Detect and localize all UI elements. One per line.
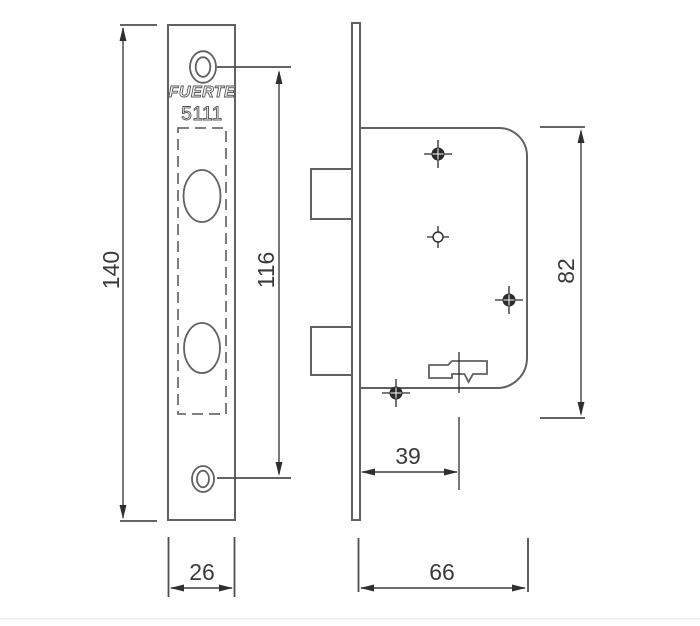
dimension-body-height: 82	[540, 127, 585, 418]
lock-body	[360, 128, 527, 388]
drawing-canvas: FUERTE 5111 140 116 26	[0, 0, 700, 626]
hole-spacing-value: 116	[253, 252, 279, 289]
arrow-down-icon	[276, 462, 283, 476]
front-view: FUERTE 5111	[168, 25, 236, 520]
arrow-up-icon	[578, 129, 585, 143]
latch-bolt-upper	[311, 169, 352, 219]
arrow-up-icon	[276, 70, 283, 84]
dimension-backset: 39	[361, 417, 459, 490]
lock-technical-drawing: FUERTE 5111 140 116 26	[0, 0, 700, 626]
brand-engraving: FUERTE	[169, 84, 237, 101]
arrow-right-icon	[219, 585, 233, 592]
arrow-down-icon	[120, 505, 127, 519]
faceplate-edge	[352, 23, 360, 520]
body-height-value: 82	[553, 258, 579, 284]
backset-value: 39	[395, 443, 421, 469]
front-height-value: 140	[98, 251, 124, 289]
arrow-left-icon	[170, 585, 184, 592]
dimension-front-height: 140	[98, 25, 157, 521]
latch-bolt-lower	[311, 327, 352, 375]
arrow-right-icon	[444, 469, 458, 476]
model-engraving: 5111	[181, 104, 222, 125]
dimension-body-depth: 66	[359, 538, 529, 592]
arrow-right-icon	[512, 585, 526, 592]
arrow-left-icon	[360, 585, 374, 592]
body-depth-value: 66	[429, 559, 455, 585]
arrow-down-icon	[578, 402, 585, 416]
arrow-up-icon	[120, 27, 127, 41]
dimension-front-width: 26	[169, 537, 235, 597]
arrow-left-icon	[361, 469, 375, 476]
page-divider	[0, 618, 700, 620]
front-width-value: 26	[189, 559, 215, 585]
